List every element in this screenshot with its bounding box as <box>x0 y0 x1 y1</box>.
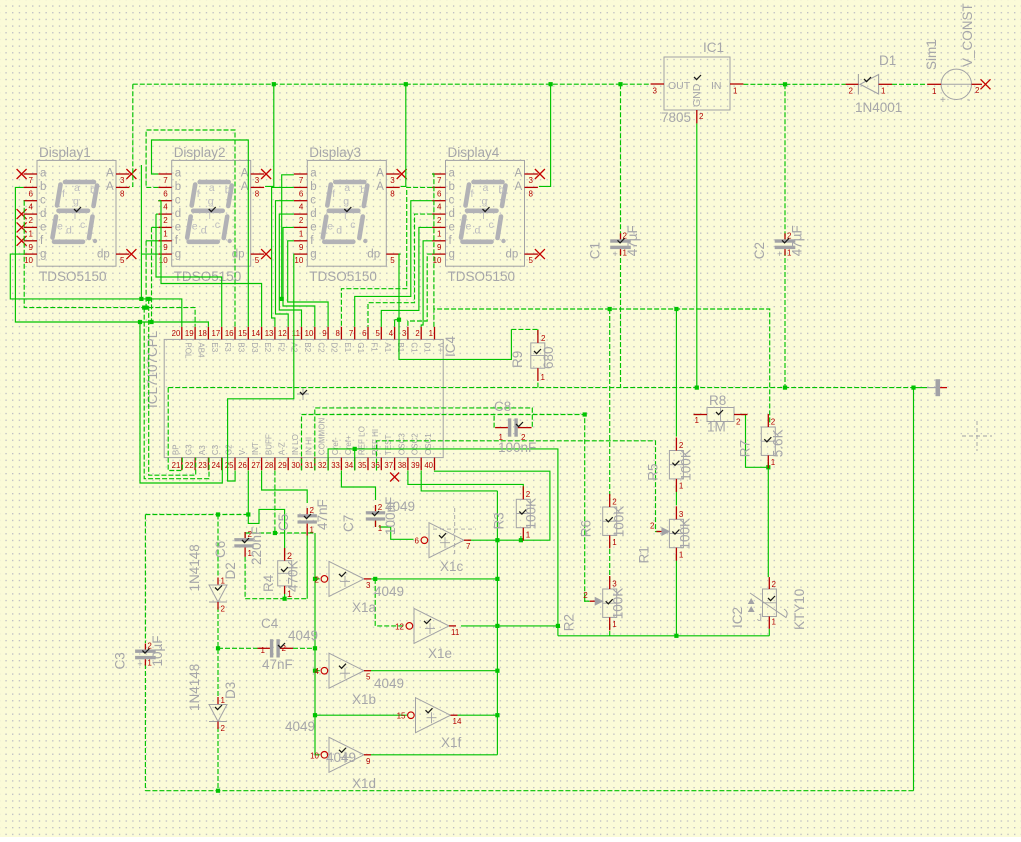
svg-text:Cref-: Cref- <box>331 437 340 455</box>
svg-text:e: e <box>466 221 472 233</box>
svg-text:680: 680 <box>541 346 556 369</box>
svg-text:C3: C3 <box>211 444 220 455</box>
svg-text:40: 40 <box>424 461 433 470</box>
svg-text:INT: INT <box>251 442 260 455</box>
svg-text:1N4148: 1N4148 <box>187 664 202 711</box>
svg-text:V_CONST: V_CONST <box>960 3 975 67</box>
svg-text:1: 1 <box>261 646 266 655</box>
svg-text:4049: 4049 <box>326 750 356 765</box>
svg-text:dp: dp <box>232 249 245 261</box>
svg-text:e: e <box>310 222 316 234</box>
svg-text:1: 1 <box>612 620 617 629</box>
svg-text:g: g <box>310 249 316 261</box>
svg-text:IN: IN <box>711 80 722 92</box>
svg-text:2: 2 <box>975 86 980 95</box>
svg-text:dp: dp <box>97 249 110 261</box>
svg-text:2: 2 <box>29 216 34 225</box>
svg-text:F1: F1 <box>370 342 379 352</box>
svg-text:ICL7107CPL: ICL7107CPL <box>145 330 160 408</box>
svg-text:AB4: AB4 <box>197 342 206 358</box>
svg-text:4049: 4049 <box>374 584 404 599</box>
svg-text:A: A <box>376 168 384 180</box>
svg-text:6: 6 <box>299 189 304 198</box>
svg-text:GND: GND <box>691 83 703 107</box>
svg-text:d: d <box>66 225 72 237</box>
svg-text:a: a <box>449 168 456 180</box>
svg-text:8: 8 <box>120 189 125 198</box>
svg-text:9: 9 <box>299 243 304 252</box>
svg-text:2: 2 <box>299 216 304 225</box>
svg-text:V-: V- <box>238 447 247 455</box>
svg-text:g: g <box>73 196 79 208</box>
svg-text:2: 2 <box>849 87 854 96</box>
svg-text:4049: 4049 <box>385 499 415 514</box>
svg-text:c: c <box>40 195 46 207</box>
svg-text:4: 4 <box>29 203 34 212</box>
svg-text:A: A <box>106 181 114 193</box>
svg-text:3: 3 <box>366 581 371 590</box>
svg-text:10: 10 <box>305 329 314 338</box>
svg-text:6: 6 <box>437 189 442 198</box>
svg-text:1: 1 <box>429 329 433 338</box>
svg-text:J: J <box>757 613 762 624</box>
svg-text:d: d <box>449 208 455 220</box>
svg-text:C5: C5 <box>276 514 291 531</box>
svg-text:14: 14 <box>251 329 260 338</box>
svg-text:10: 10 <box>310 751 319 760</box>
svg-text:e: e <box>327 221 333 233</box>
svg-text:3: 3 <box>653 87 658 96</box>
svg-text:g: g <box>343 196 349 208</box>
svg-text:F2: F2 <box>276 342 285 352</box>
svg-text:C2: C2 <box>316 342 325 353</box>
svg-text:7: 7 <box>466 542 471 551</box>
svg-text:100nF: 100nF <box>498 440 536 455</box>
svg-text:2: 2 <box>221 605 226 614</box>
svg-text:e: e <box>449 222 455 234</box>
svg-text:2: 2 <box>679 441 684 450</box>
svg-text:17: 17 <box>212 329 221 338</box>
svg-text:2: 2 <box>526 490 531 499</box>
svg-text:A3: A3 <box>198 445 207 455</box>
svg-text:3: 3 <box>120 176 125 185</box>
svg-text:g: g <box>40 249 46 261</box>
svg-text:16: 16 <box>225 329 234 338</box>
svg-text:X1a: X1a <box>352 600 377 615</box>
svg-text:27: 27 <box>251 461 260 470</box>
svg-text:5: 5 <box>120 256 125 265</box>
svg-text:a: a <box>310 168 317 180</box>
svg-text:10µF: 10µF <box>150 635 165 666</box>
svg-text:36: 36 <box>371 461 380 470</box>
svg-text:C2: C2 <box>752 242 767 259</box>
svg-text:C1: C1 <box>409 342 418 353</box>
svg-text:7: 7 <box>29 176 34 185</box>
svg-text:b: b <box>90 184 96 196</box>
svg-text:1: 1 <box>679 482 684 491</box>
svg-text:b: b <box>310 181 316 193</box>
svg-text:5.6K: 5.6K <box>770 429 785 457</box>
svg-text:2: 2 <box>221 724 226 733</box>
svg-text:4: 4 <box>163 203 168 212</box>
svg-text:c: c <box>489 219 494 231</box>
svg-text:d: d <box>201 225 207 237</box>
svg-text:c: c <box>350 219 355 231</box>
svg-text:5: 5 <box>529 256 534 265</box>
svg-text:1: 1 <box>437 229 442 238</box>
svg-text:A1: A1 <box>383 342 392 352</box>
svg-text:IC2: IC2 <box>730 607 745 628</box>
svg-text:13: 13 <box>265 329 274 338</box>
svg-text:+: + <box>613 249 618 259</box>
svg-text:1: 1 <box>881 87 886 96</box>
svg-text:2: 2 <box>771 418 776 427</box>
svg-text:1: 1 <box>771 458 776 467</box>
svg-text:X1c: X1c <box>440 559 464 574</box>
svg-text:c: c <box>310 195 316 207</box>
svg-text:D3: D3 <box>250 342 259 353</box>
svg-text:1M: 1M <box>707 420 726 435</box>
svg-text:Display1: Display1 <box>39 145 91 160</box>
svg-text:f: f <box>332 188 335 200</box>
svg-text:b: b <box>225 184 231 196</box>
svg-text:31: 31 <box>305 461 314 470</box>
svg-text:9: 9 <box>437 243 442 252</box>
svg-text:A: A <box>106 168 114 180</box>
svg-text:1: 1 <box>932 87 937 96</box>
svg-text:1: 1 <box>299 229 304 238</box>
svg-text:470K: 470K <box>286 560 301 592</box>
svg-text:b: b <box>499 184 505 196</box>
svg-text:R4: R4 <box>261 574 276 592</box>
svg-text:R3: R3 <box>491 512 506 529</box>
svg-text:220nF: 220nF <box>249 527 264 565</box>
svg-text:a: a <box>175 168 182 180</box>
svg-text:14: 14 <box>453 717 462 726</box>
svg-text:6: 6 <box>362 329 366 338</box>
svg-text:3: 3 <box>402 329 406 338</box>
svg-text:dp: dp <box>367 249 380 261</box>
svg-text:D1: D1 <box>423 342 432 353</box>
svg-text:4049: 4049 <box>288 628 318 643</box>
svg-text:10: 10 <box>159 256 168 265</box>
svg-text:1: 1 <box>29 229 34 238</box>
svg-text:1: 1 <box>526 531 531 540</box>
svg-text:a: a <box>344 182 350 194</box>
svg-text:47µF: 47µF <box>625 225 640 256</box>
svg-text:15: 15 <box>238 329 247 338</box>
svg-text:KTY10: KTY10 <box>792 589 807 630</box>
svg-text:6: 6 <box>415 537 420 546</box>
svg-text:R2: R2 <box>562 614 577 631</box>
svg-text:+: + <box>137 659 142 669</box>
svg-text:15: 15 <box>397 712 406 721</box>
svg-text:B1: B1 <box>396 342 405 352</box>
svg-text:Sim1: Sim1 <box>924 39 939 70</box>
svg-text:f: f <box>197 188 200 200</box>
svg-text:IN LO: IN LO <box>291 434 300 455</box>
svg-text:TDSO5150: TDSO5150 <box>39 269 107 284</box>
svg-text:d: d <box>40 208 46 220</box>
svg-text:G3: G3 <box>185 444 194 455</box>
svg-text:e: e <box>175 222 181 234</box>
svg-text:b: b <box>40 181 46 193</box>
svg-text:A: A <box>515 181 523 193</box>
svg-text:24: 24 <box>212 461 221 470</box>
svg-text:a: a <box>483 182 489 194</box>
svg-text:a: a <box>74 182 80 194</box>
svg-text:1: 1 <box>733 87 738 96</box>
svg-text:23: 23 <box>198 461 207 470</box>
svg-text:1: 1 <box>695 416 700 425</box>
svg-text:5: 5 <box>375 329 380 338</box>
svg-text:TDSO5150: TDSO5150 <box>448 269 516 284</box>
svg-text:COMMON: COMMON <box>318 418 327 456</box>
svg-text:9: 9 <box>366 757 371 766</box>
svg-text:20: 20 <box>172 329 181 338</box>
svg-text:e: e <box>40 222 46 234</box>
svg-text:2: 2 <box>315 575 320 584</box>
svg-text:D3: D3 <box>223 682 238 699</box>
svg-text:A: A <box>515 168 523 180</box>
svg-text:C8: C8 <box>494 399 511 414</box>
svg-text:b: b <box>360 184 366 196</box>
svg-text:2: 2 <box>736 418 741 427</box>
svg-text:100K: 100K <box>612 506 627 538</box>
svg-text:1: 1 <box>541 373 546 382</box>
svg-text:8: 8 <box>336 329 340 338</box>
svg-text:29: 29 <box>278 461 287 470</box>
svg-text:dp: dp <box>506 249 519 261</box>
svg-text:BP: BP <box>171 444 180 455</box>
svg-text:35: 35 <box>358 461 367 470</box>
svg-text:21: 21 <box>172 461 181 470</box>
svg-text:3: 3 <box>679 510 684 519</box>
svg-text:e: e <box>57 221 63 233</box>
svg-text:32: 32 <box>318 461 327 470</box>
svg-text:C3: C3 <box>112 652 127 669</box>
svg-text:12: 12 <box>395 622 404 631</box>
svg-text:5: 5 <box>366 673 371 682</box>
svg-text:e: e <box>192 221 198 233</box>
svg-text:BUFF: BUFF <box>264 434 273 455</box>
svg-text:9: 9 <box>322 329 326 338</box>
svg-text:6: 6 <box>29 189 34 198</box>
svg-text:1: 1 <box>310 526 315 535</box>
svg-text:R5: R5 <box>645 463 660 480</box>
svg-text:1: 1 <box>163 229 168 238</box>
svg-text:4: 4 <box>315 667 320 676</box>
svg-text:a: a <box>209 182 215 194</box>
svg-text:R6: R6 <box>579 520 594 537</box>
svg-text:A: A <box>241 168 249 180</box>
svg-text:3: 3 <box>612 580 617 589</box>
svg-text:Display4: Display4 <box>448 145 500 160</box>
svg-text:c: c <box>175 195 181 207</box>
svg-text:REF HI: REF HI <box>371 429 380 455</box>
svg-text:100K: 100K <box>678 449 693 481</box>
svg-text:f: f <box>471 188 474 200</box>
svg-text:d: d <box>475 225 481 237</box>
svg-text:f: f <box>62 188 65 200</box>
svg-text:R1: R1 <box>636 546 651 563</box>
svg-text:OSC3: OSC3 <box>397 433 406 455</box>
svg-text:2: 2 <box>699 112 704 121</box>
svg-text:C7: C7 <box>341 515 356 532</box>
svg-text:+: + <box>940 95 946 106</box>
svg-text:R8: R8 <box>709 393 726 408</box>
svg-text:E1: E1 <box>343 342 352 352</box>
svg-text:4: 4 <box>389 329 394 338</box>
svg-text:A: A <box>241 181 249 193</box>
svg-text:-: - <box>967 95 970 106</box>
svg-text:7: 7 <box>437 176 442 185</box>
svg-text:TDSO5150: TDSO5150 <box>309 269 377 284</box>
svg-text:d: d <box>175 208 181 220</box>
svg-text:IC1: IC1 <box>703 40 724 55</box>
svg-text:V+: V+ <box>436 342 445 352</box>
svg-text:F3: F3 <box>223 342 232 352</box>
svg-text:a: a <box>40 168 47 180</box>
svg-text:47nF: 47nF <box>315 499 330 530</box>
svg-text:3: 3 <box>529 176 534 185</box>
svg-text:D2: D2 <box>330 342 339 353</box>
svg-text:3: 3 <box>390 176 395 185</box>
svg-text:1N4001: 1N4001 <box>855 100 902 115</box>
svg-text:g: g <box>449 249 455 261</box>
svg-text:b: b <box>449 181 455 193</box>
svg-text:d: d <box>310 208 316 220</box>
svg-text:A: A <box>376 181 384 193</box>
svg-text:7: 7 <box>299 176 304 185</box>
svg-text:38: 38 <box>398 461 407 470</box>
svg-text:G1: G1 <box>356 342 365 353</box>
svg-text:8: 8 <box>255 189 260 198</box>
svg-text:+: + <box>777 249 782 259</box>
svg-text:d: d <box>336 225 342 237</box>
svg-text:2: 2 <box>612 498 617 507</box>
svg-text:REF LO: REF LO <box>358 426 367 455</box>
svg-text:4: 4 <box>437 203 442 212</box>
svg-text:10: 10 <box>294 256 303 265</box>
svg-text:c: c <box>449 195 455 207</box>
svg-text:1: 1 <box>612 538 617 547</box>
svg-text:2: 2 <box>163 216 168 225</box>
svg-text:47nF: 47nF <box>262 657 293 672</box>
svg-text:100K: 100K <box>523 498 538 530</box>
svg-text:7: 7 <box>349 329 353 338</box>
svg-text:4: 4 <box>299 203 304 212</box>
svg-text:Display3: Display3 <box>309 145 361 160</box>
svg-text:c: c <box>215 219 220 231</box>
svg-text:12: 12 <box>278 329 287 338</box>
svg-text:2: 2 <box>437 216 442 225</box>
svg-text:2: 2 <box>541 334 546 343</box>
svg-text:8: 8 <box>390 189 395 198</box>
svg-text:22: 22 <box>185 461 194 470</box>
svg-text:11: 11 <box>292 329 300 338</box>
svg-text:26: 26 <box>238 461 247 470</box>
svg-text:47µF: 47µF <box>790 225 805 256</box>
svg-text:3: 3 <box>255 176 260 185</box>
svg-text:IN HI: IN HI <box>304 437 313 455</box>
svg-text:C6: C6 <box>213 541 228 558</box>
svg-text:4049: 4049 <box>285 719 315 734</box>
svg-text:C4: C4 <box>261 616 279 631</box>
svg-text:Cref+: Cref+ <box>344 435 353 455</box>
svg-text:TEST: TEST <box>384 435 393 456</box>
svg-text:E3: E3 <box>210 342 219 352</box>
svg-text:E2: E2 <box>263 342 272 352</box>
svg-text:30: 30 <box>291 461 300 470</box>
svg-text:9: 9 <box>29 243 34 252</box>
svg-text:1N4148: 1N4148 <box>187 544 202 591</box>
svg-text:2: 2 <box>772 580 777 589</box>
svg-text:X1d: X1d <box>352 776 376 791</box>
svg-text:19: 19 <box>185 329 194 338</box>
svg-text:11: 11 <box>451 628 460 637</box>
svg-text:4049: 4049 <box>374 676 404 691</box>
svg-text:6: 6 <box>163 189 168 198</box>
svg-text:X1f: X1f <box>441 735 462 750</box>
svg-text:D2: D2 <box>223 562 238 579</box>
svg-text:OUT: OUT <box>668 80 691 92</box>
svg-text:7805: 7805 <box>661 110 691 125</box>
svg-text:2: 2 <box>287 551 292 561</box>
svg-text:34: 34 <box>345 461 354 470</box>
svg-text:G2: G2 <box>225 444 234 455</box>
svg-text:OSC2: OSC2 <box>411 433 420 455</box>
svg-text:33: 33 <box>331 461 340 470</box>
svg-text:g: g <box>175 249 181 261</box>
svg-text:39: 39 <box>411 461 420 470</box>
svg-text:28: 28 <box>265 461 274 470</box>
svg-text:R7: R7 <box>737 440 752 457</box>
svg-text:A-Z: A-Z <box>278 442 287 455</box>
svg-text:5: 5 <box>390 256 395 265</box>
svg-text:b: b <box>175 181 181 193</box>
svg-text:18: 18 <box>198 329 207 338</box>
svg-text:10: 10 <box>24 256 33 265</box>
svg-text:1: 1 <box>772 618 777 627</box>
svg-text:g: g <box>208 196 214 208</box>
svg-text:Display2: Display2 <box>174 145 226 160</box>
svg-text:g: g <box>482 196 488 208</box>
svg-text:OSC1: OSC1 <box>424 433 433 455</box>
svg-text:25: 25 <box>225 461 234 470</box>
svg-text:5: 5 <box>255 256 260 265</box>
svg-text:1: 1 <box>679 551 684 560</box>
svg-text:D1: D1 <box>879 53 896 68</box>
svg-text:POL: POL <box>183 342 192 359</box>
svg-text:B3: B3 <box>237 342 246 352</box>
svg-text:X1b: X1b <box>352 692 376 707</box>
svg-text:7: 7 <box>163 176 168 185</box>
svg-text:9: 9 <box>163 243 168 252</box>
svg-text:X1e: X1e <box>428 646 452 661</box>
svg-text:2: 2 <box>583 591 588 600</box>
svg-text:2: 2 <box>415 329 419 338</box>
svg-text:C1: C1 <box>588 242 603 259</box>
svg-text:R9: R9 <box>510 351 525 368</box>
svg-text:2: 2 <box>310 506 315 515</box>
svg-text:c: c <box>80 219 85 231</box>
svg-text:100K: 100K <box>611 588 626 620</box>
svg-text:100K: 100K <box>677 518 692 550</box>
svg-text:37: 37 <box>384 461 393 470</box>
svg-text:2: 2 <box>650 522 655 531</box>
svg-text:8: 8 <box>529 189 534 198</box>
